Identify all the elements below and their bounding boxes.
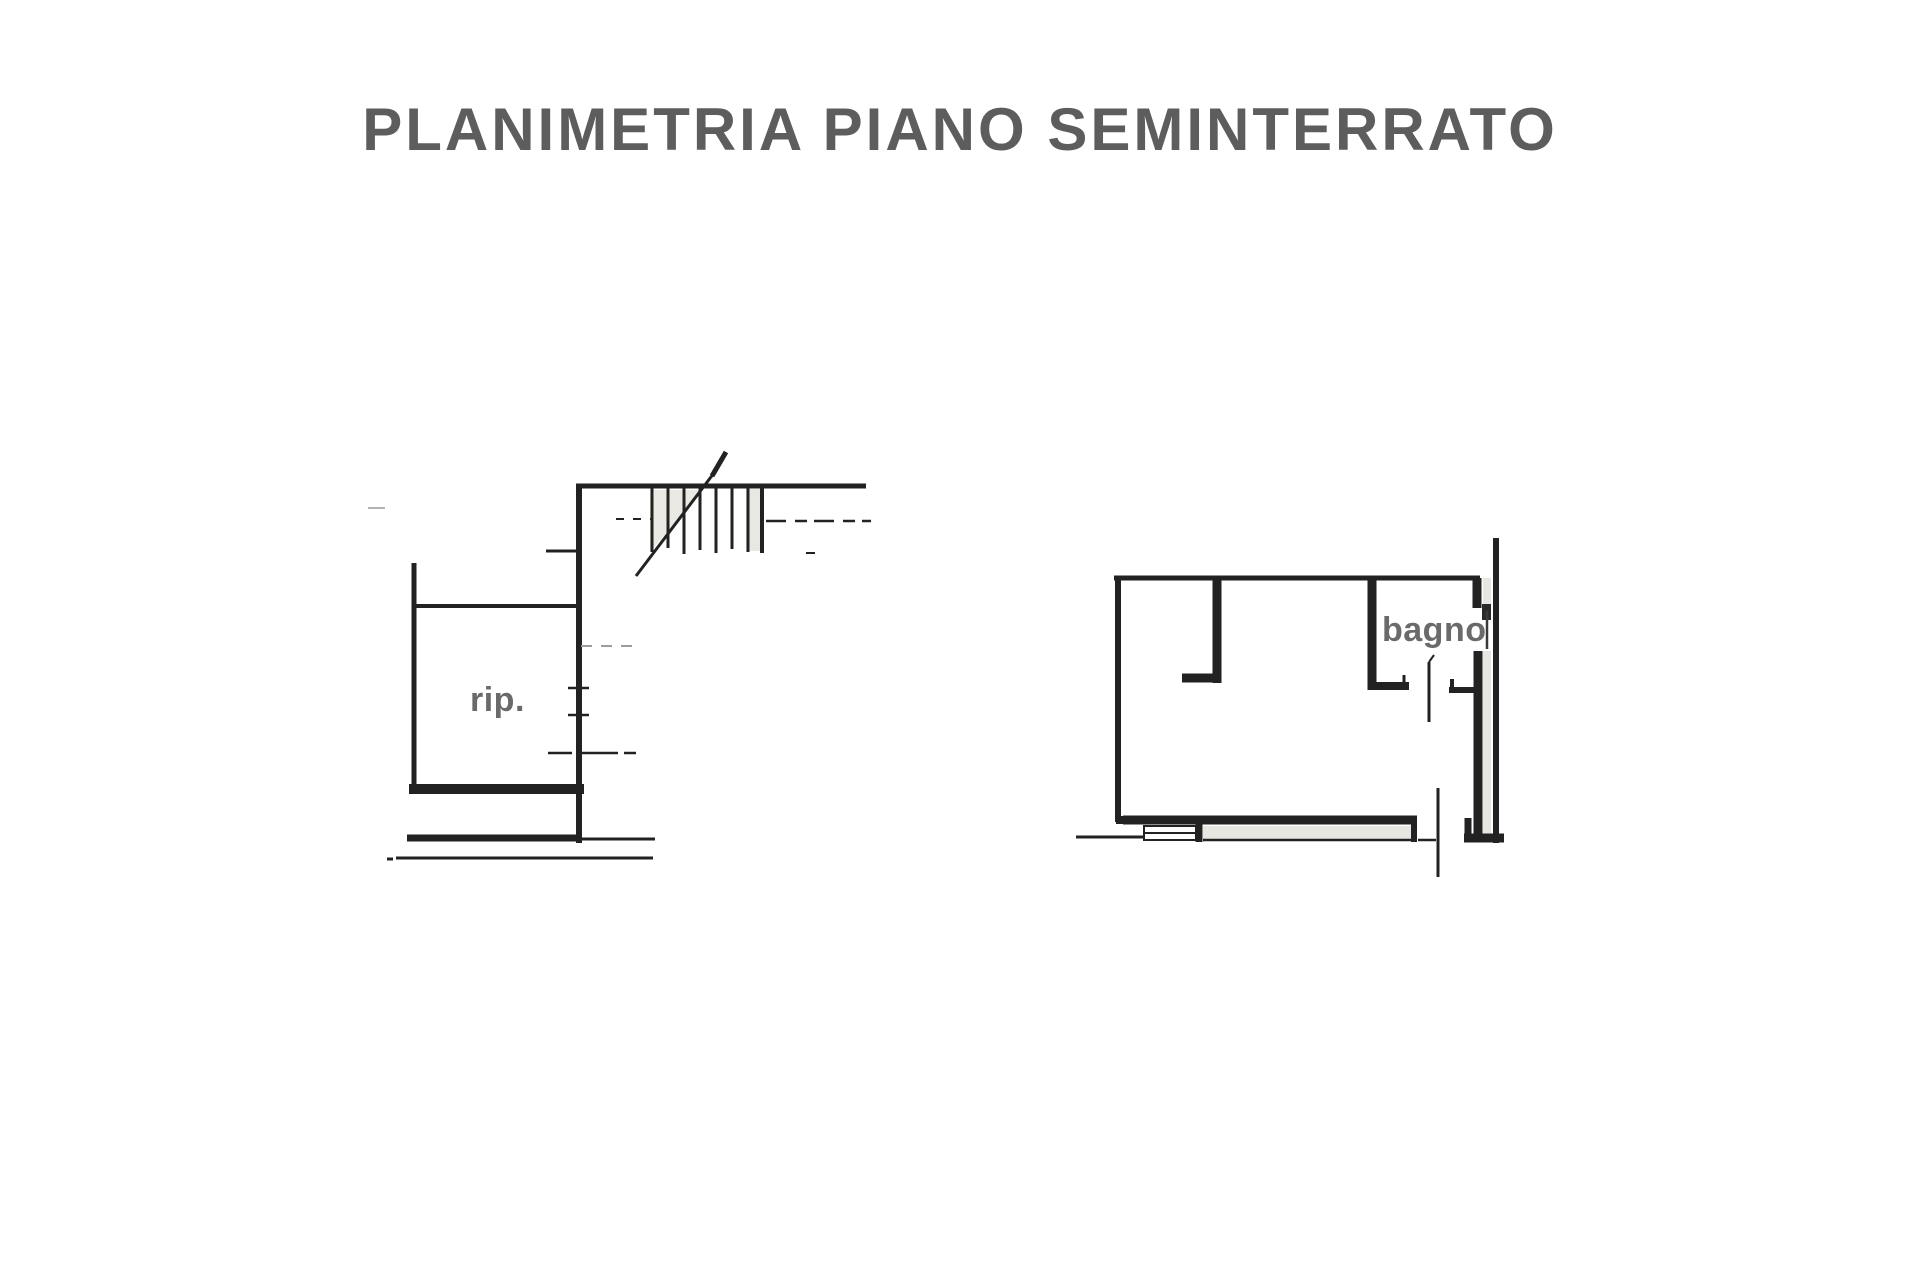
floorplan-canvas: [0, 0, 1920, 1280]
bottom-door-axis: [1418, 788, 1438, 877]
bagno-room-label: bagno: [1382, 611, 1486, 650]
right-floorplan-group: [1076, 538, 1504, 877]
left-plan-guide-lines: [368, 508, 871, 753]
staircase-treads: [652, 488, 762, 554]
bagno-door-leaf: [1429, 655, 1434, 722]
left-floorplan-group: [368, 452, 871, 859]
interior-partition-wall: [1182, 578, 1221, 683]
rip-room-walls: [387, 484, 866, 859]
rip-room-label: rip.: [470, 681, 525, 720]
